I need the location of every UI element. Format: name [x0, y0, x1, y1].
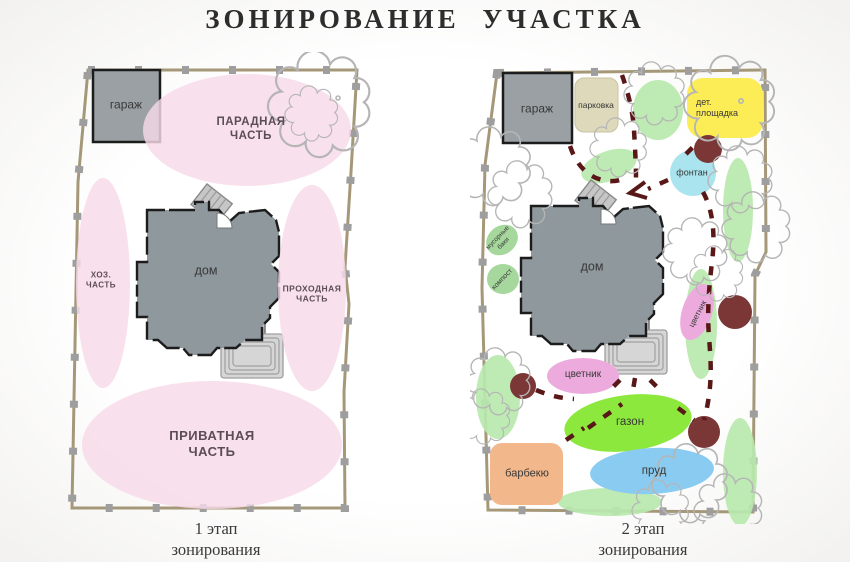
path-terrace-fan	[610, 378, 660, 390]
playground-label: дет. площадка	[696, 97, 738, 119]
front-zone-label: ПАРАДНАЯ ЧАСТЬ	[216, 115, 285, 143]
zoning-diagram: ЗОНИРОВАНИЕ УЧАСТКА гараж ПАРАДНАЯ ЧАСТЬ…	[0, 0, 850, 562]
parking-label: парковка	[578, 100, 614, 110]
utility-zone-label: ХОЗ. ЧАСТЬ	[86, 270, 116, 290]
plan-stage2: гараж парковка дет. площадка фонтан мусо…	[470, 52, 800, 524]
path-fountain-entry	[648, 180, 668, 189]
tree-dot-1	[336, 96, 340, 100]
lawn-label: газон	[616, 415, 644, 429]
bush-left	[476, 355, 520, 439]
caption-stage1: 1 этап зонирования	[116, 518, 316, 561]
path-arrowhead	[630, 182, 647, 198]
tree-maroon-2	[718, 295, 752, 329]
bbq-label: барбекю	[505, 467, 549, 480]
bush-top-center	[633, 80, 683, 140]
private-zone-label: ПРИВАТНАЯ ЧАСТЬ	[169, 428, 254, 460]
house-label-2: дом	[581, 259, 604, 274]
house-label-1: дом	[195, 263, 218, 278]
house-1	[137, 184, 283, 378]
page-title: ЗОНИРОВАНИЕ УЧАСТКА	[0, 4, 850, 35]
fountain-label: фонтан	[676, 168, 707, 179]
garage-label-2: гараж	[521, 102, 553, 117]
plan-stage1: гараж ПАРАДНАЯ ЧАСТЬ ХОЗ. ЧАСТЬ дом ПРОХ…	[55, 52, 377, 524]
bush-mid	[577, 142, 642, 190]
bush-right-bottom	[723, 418, 757, 524]
plan-stage2-drawing	[470, 52, 800, 524]
caption-stage2: 2 этап зонирования	[543, 518, 743, 561]
flowerbed-front-label: цветник	[565, 369, 601, 381]
passage-zone-label: ПРОХОДНАЯ ЧАСТЬ	[283, 284, 342, 305]
garage-label-1: гараж	[110, 98, 142, 113]
pond-label: пруд	[642, 464, 667, 478]
